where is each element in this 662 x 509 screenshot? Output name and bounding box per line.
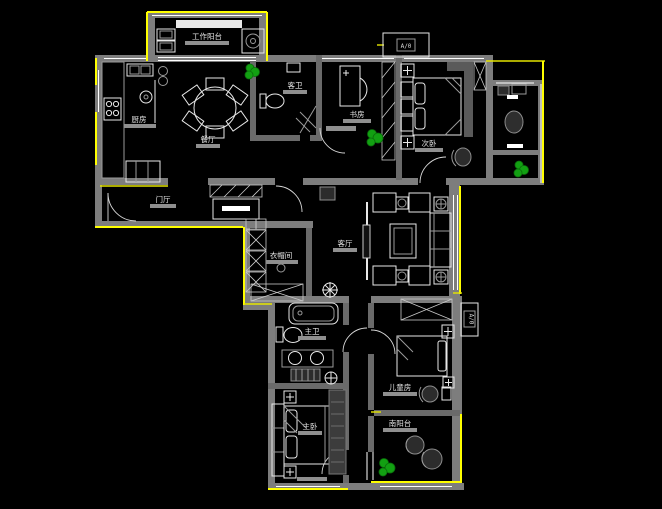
ceiling-fan-icon <box>322 282 338 298</box>
svg-text:书房: 书房 <box>350 109 365 119</box>
chair-icon <box>455 148 471 166</box>
room-label-bedroom2: 次卧 <box>415 138 443 152</box>
wardrobe-icon <box>447 62 473 137</box>
stove-icon <box>104 98 121 120</box>
master-bedroom-furniture <box>272 390 346 481</box>
plant-icon <box>245 64 260 79</box>
svg-text:衣帽间: 衣帽间 <box>270 250 293 260</box>
armchair-icon <box>373 193 396 212</box>
room-label-living: 客厅 <box>333 238 357 252</box>
balcony-counter <box>176 20 242 28</box>
section-marker-right: A/0 <box>461 303 478 336</box>
svg-text:主卧: 主卧 <box>303 421 318 431</box>
vanity-icon <box>282 350 333 367</box>
chair-icon <box>422 386 438 402</box>
sink-icon <box>287 63 300 72</box>
bowl-icon <box>140 91 152 103</box>
desk-icon <box>442 387 451 400</box>
svg-text:南阳台: 南阳台 <box>389 418 412 428</box>
bedroom2-furniture <box>401 62 486 166</box>
svg-text:次卧: 次卧 <box>422 138 437 148</box>
armchair-icon <box>409 193 430 212</box>
side-balcony-furniture <box>498 84 526 148</box>
room-label-master-bedroom: 主卧 <box>298 421 322 435</box>
room-label-closet: 衣帽间 <box>266 250 298 264</box>
svg-text:工作阳台: 工作阳台 <box>192 31 222 41</box>
svg-text:主卫: 主卫 <box>305 326 320 336</box>
cabinet-hatch <box>210 185 262 197</box>
svg-text:厨房: 厨房 <box>132 114 147 124</box>
balcony-furniture <box>406 436 442 469</box>
tv-icon <box>363 225 370 258</box>
room-label-dining: 餐厅 <box>196 135 220 148</box>
plant-icon <box>379 459 395 477</box>
guest-bath-fixtures <box>260 63 316 133</box>
exhaust-fan-icon <box>325 372 337 384</box>
floorplan-canvas: A/0 A/0 工作阳台 厨房 餐厅 客卫 书房 次卧 <box>0 0 662 509</box>
master-bath-fixtures <box>276 303 338 384</box>
floorplan-drawing: A/0 A/0 工作阳台 厨房 餐厅 客卫 书房 次卧 <box>0 0 662 509</box>
dining-table-icon <box>194 87 236 129</box>
plant-icon <box>514 161 529 177</box>
desk-icon <box>340 66 360 106</box>
section-marker-right-label: A/0 <box>468 314 475 325</box>
svg-text:客厅: 客厅 <box>338 238 353 248</box>
room-label-study: 书房 <box>343 109 371 123</box>
sofa-icon <box>430 213 451 267</box>
room-label-work-balcony: 工作阳台 <box>185 31 229 45</box>
svg-text:客卫: 客卫 <box>288 80 303 90</box>
room-label-kitchen: 厨房 <box>124 114 156 128</box>
room-label-foyer: 门厅 <box>150 195 176 208</box>
dining-table-set <box>182 78 248 138</box>
chair-icon <box>505 111 523 133</box>
toilet-icon <box>266 94 284 108</box>
toilet-icon <box>284 328 302 343</box>
section-marker-top-label: A/0 <box>401 43 412 50</box>
section-marker-top: A/0 <box>383 33 429 57</box>
room-label-guest-bath: 客卫 <box>283 80 307 94</box>
wardrobe-icon <box>329 390 346 474</box>
armchair-icon <box>373 266 396 285</box>
room-label-kids-room: 儿童房 <box>383 382 417 396</box>
armchair-icon <box>409 266 430 285</box>
foyer-furniture <box>210 185 262 219</box>
svg-text:门厅: 门厅 <box>156 195 171 204</box>
plant-icon <box>367 130 383 147</box>
stool-icon <box>277 264 285 272</box>
room-label-balcony: 南阳台 <box>383 418 417 432</box>
chair-icon <box>360 78 367 101</box>
svg-text:餐厅: 餐厅 <box>201 135 216 144</box>
svg-text:儿童房: 儿童房 <box>389 382 412 392</box>
closet-hatch <box>382 62 395 160</box>
